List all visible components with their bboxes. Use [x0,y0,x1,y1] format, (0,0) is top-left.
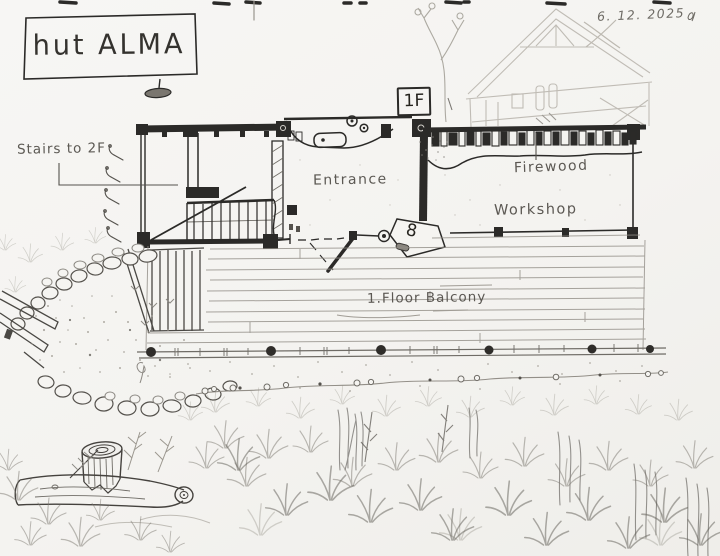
partition-wall [419,133,428,221]
firewood-label: Firewood [514,158,589,177]
date-flourish [688,12,695,21]
workshop-label: Workshop [494,201,578,218]
pencil-squiggle [137,363,145,383]
page-title: hut ALMA [32,27,186,62]
firewood-stack-sketch [432,130,636,146]
entrance-label: Entrance [313,171,388,188]
grass-field [0,227,720,552]
tree-stump-sketch [81,440,122,493]
deck-edge [137,344,666,358]
floor-tag: 1F [397,87,432,117]
tall-grass-sketch [338,408,709,556]
balcony-deck [123,235,666,383]
edge-stones [202,371,663,394]
entrance-door-sketch [298,231,390,272]
wood-boards-sketch [0,291,58,368]
sketch-page: hut ALMA 6. 12. 2025 1F Stairs to 2F Ent… [0,0,720,556]
plant-sprigs [104,145,123,242]
fallen-log-sketch [15,450,194,507]
staircase-sketch [151,127,276,241]
sketch-canvas [0,0,720,556]
stove-sketch [287,205,297,215]
hut-elevation-sketch [466,9,652,127]
balcony-label: 1.Floor Balcony [367,289,486,307]
gravel-dots [31,295,191,377]
lawn-edge-line [196,372,668,394]
fir-twigs-sketch [124,432,174,472]
ground-edge [154,361,668,394]
stairs-label: Stairs to 2F [17,140,106,158]
page-edge-marks [60,1,670,20]
kitchen-counter-sketch [286,116,393,148]
floorplan [123,116,666,383]
pencil-cross-sketch [584,20,620,48]
